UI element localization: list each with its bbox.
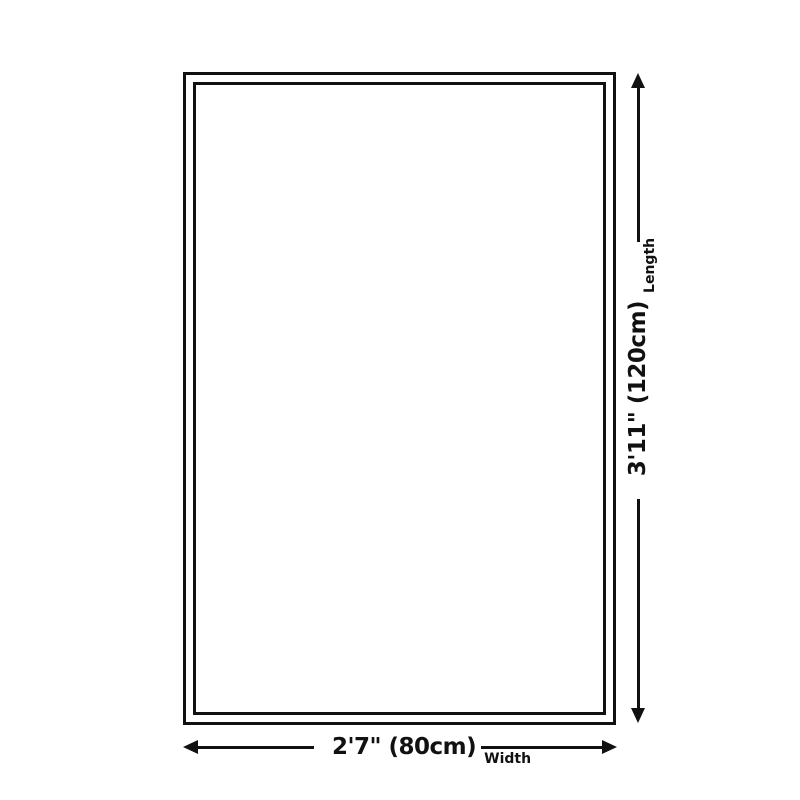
width-arrow-line-right [481,746,602,749]
width-label-group: 2'7" (80cm) Width [314,734,481,760]
width-arrow-line-left [198,746,314,749]
length-label-rotated: 3'11" (120cm) Length [625,238,651,504]
length-label: Length [642,238,658,293]
arrow-left-icon [183,740,198,754]
width-label: Width [484,751,531,767]
rug-outline-outer [183,72,616,725]
length-dimension-arrow: 3'11" (120cm) Length [629,73,647,723]
length-label-group: 3'11" (120cm) Length [629,242,647,499]
rug-size-diagram: 3'11" (120cm) Length 2'7" (80cm) Width [0,0,800,800]
length-value: 3'11" (120cm) [625,301,651,476]
length-arrow-line-bottom [637,499,640,708]
arrow-up-icon [631,73,645,88]
rug-outline-inner [193,82,606,715]
width-value: 2'7" (80cm) [332,734,476,760]
width-dimension-arrow: 2'7" (80cm) Width [183,734,617,760]
length-arrow-line-top [637,88,640,242]
arrow-down-icon [631,708,645,723]
arrow-right-icon [602,740,617,754]
